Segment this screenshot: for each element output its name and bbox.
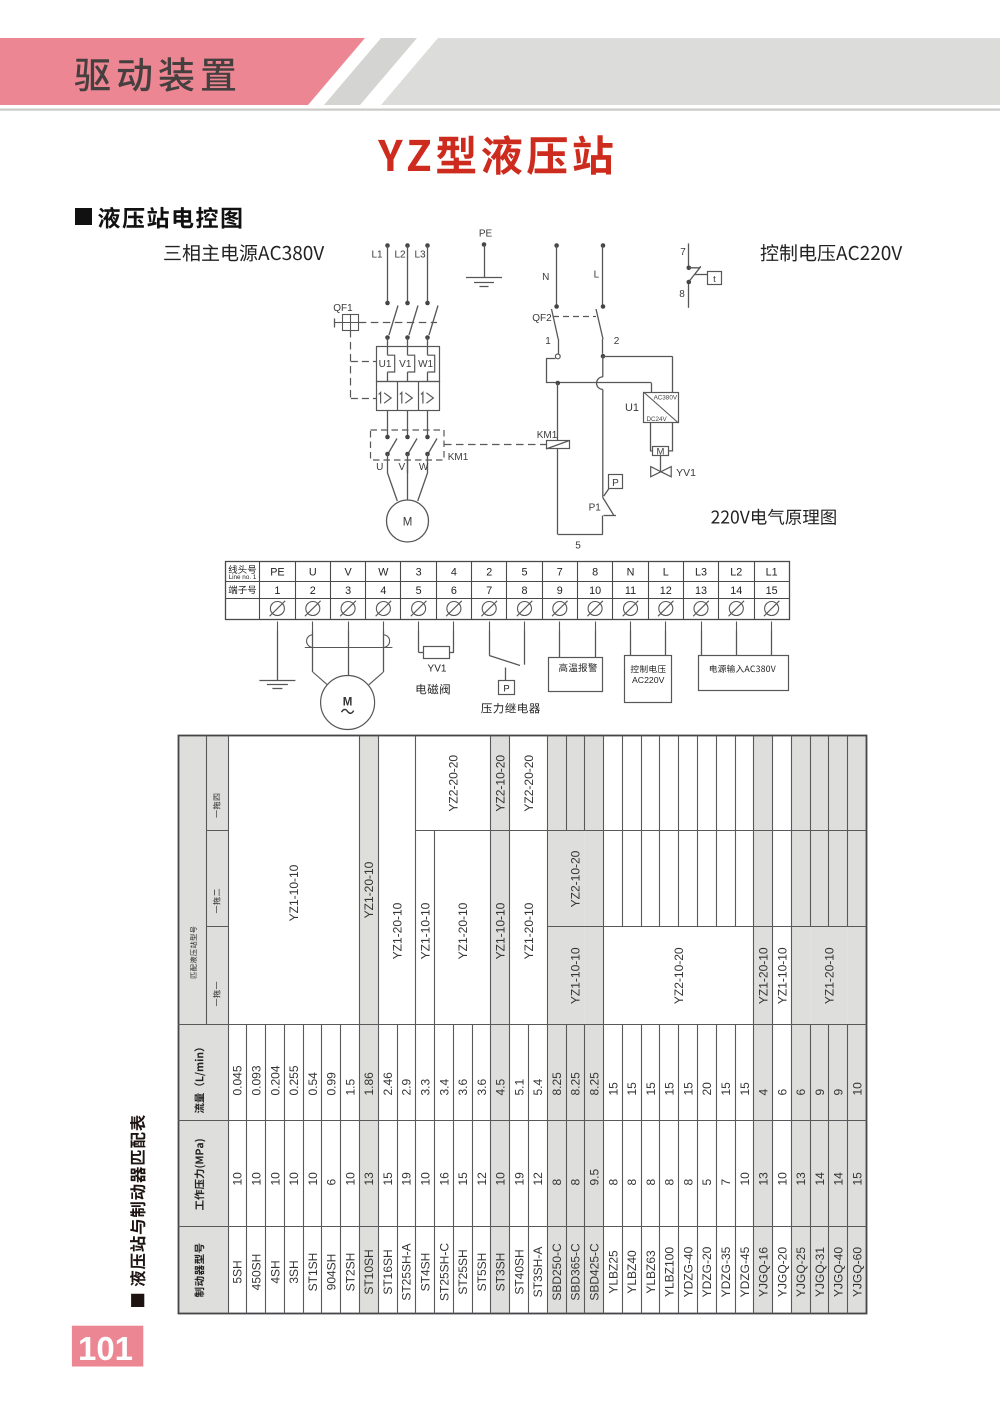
svg-text:19: 19	[400, 1172, 414, 1186]
svg-text:YLBZ40: YLBZ40	[625, 1250, 639, 1294]
svg-text:t: t	[713, 274, 716, 285]
svg-text:3: 3	[416, 566, 422, 578]
svg-text:YZ1-20-10: YZ1-20-10	[456, 902, 470, 959]
svg-text:4: 4	[451, 566, 457, 578]
svg-text:1: 1	[545, 336, 551, 347]
svg-text:10: 10	[850, 1082, 864, 1096]
svg-text:L1: L1	[766, 566, 778, 578]
svg-text:8: 8	[679, 289, 685, 300]
svg-text:10: 10	[306, 1172, 320, 1186]
svg-text:QF2: QF2	[532, 313, 552, 324]
svg-text:3.4: 3.4	[437, 1078, 451, 1095]
svg-text:13: 13	[757, 1172, 771, 1186]
svg-text:10: 10	[589, 585, 601, 597]
svg-text:YV1: YV1	[676, 467, 696, 479]
svg-text:16: 16	[437, 1172, 451, 1186]
svg-text:YZ2-10-20: YZ2-10-20	[494, 755, 508, 812]
svg-text:4.5: 4.5	[494, 1078, 508, 1095]
svg-text:10: 10	[231, 1172, 245, 1186]
svg-text:8: 8	[569, 1179, 583, 1186]
svg-text:8.25: 8.25	[550, 1072, 564, 1096]
svg-text:3.6: 3.6	[456, 1078, 470, 1095]
svg-text:U: U	[376, 462, 383, 473]
svg-text:YZ1-10-10: YZ1-10-10	[419, 902, 433, 959]
svg-text:15: 15	[850, 1172, 864, 1186]
svg-text:450SH: 450SH	[249, 1254, 263, 1291]
svg-text:YJGQ-20: YJGQ-20	[775, 1247, 789, 1297]
svg-text:10: 10	[775, 1172, 789, 1186]
svg-text:YLBZ63: YLBZ63	[644, 1250, 658, 1294]
svg-text:YZ1-10-10: YZ1-10-10	[494, 902, 508, 959]
svg-text:YZ2-10-20: YZ2-10-20	[569, 850, 583, 907]
svg-text:12: 12	[660, 585, 672, 597]
svg-text:5: 5	[700, 1179, 714, 1186]
svg-text:20: 20	[700, 1082, 714, 1096]
svg-text:14: 14	[832, 1172, 846, 1186]
svg-text:9.5: 9.5	[588, 1168, 602, 1185]
svg-text:8.25: 8.25	[588, 1072, 602, 1096]
svg-text:904SH: 904SH	[325, 1254, 339, 1291]
svg-text:V1: V1	[399, 359, 412, 370]
svg-text:AC380V: AC380V	[654, 394, 678, 401]
svg-text:15: 15	[644, 1082, 658, 1096]
svg-text:YDZG-40: YDZG-40	[681, 1246, 695, 1297]
svg-text:9: 9	[557, 585, 563, 597]
svg-text:0.045: 0.045	[231, 1065, 245, 1095]
svg-text:8: 8	[681, 1179, 695, 1186]
svg-text:YZ2-20-20: YZ2-20-20	[447, 755, 461, 812]
svg-text:15: 15	[663, 1082, 677, 1096]
svg-text:5: 5	[521, 566, 527, 578]
svg-text:V: V	[398, 462, 405, 473]
svg-text:8: 8	[663, 1179, 677, 1186]
svg-text:6: 6	[325, 1179, 339, 1186]
svg-text:8.25: 8.25	[569, 1072, 583, 1096]
svg-text:W: W	[419, 462, 429, 473]
svg-text:YDZG-45: YDZG-45	[738, 1246, 752, 1297]
svg-text:101: 101	[78, 1330, 133, 1367]
svg-text:ST25SH-A: ST25SH-A	[400, 1243, 414, 1300]
svg-text:0.093: 0.093	[249, 1065, 263, 1095]
svg-text:L1: L1	[371, 250, 383, 261]
svg-text:5SH: 5SH	[231, 1260, 245, 1283]
svg-text:8: 8	[592, 566, 598, 578]
svg-text:8: 8	[625, 1179, 639, 1186]
svg-text:YDZG-35: YDZG-35	[719, 1246, 733, 1297]
svg-text:6: 6	[451, 585, 457, 597]
svg-text:W1: W1	[418, 359, 433, 370]
svg-text:14: 14	[730, 585, 742, 597]
svg-text:3.6: 3.6	[475, 1078, 489, 1095]
svg-text:P1: P1	[589, 503, 602, 514]
svg-text:YJGQ-16: YJGQ-16	[757, 1247, 771, 1297]
svg-text:YDZG-20: YDZG-20	[700, 1246, 714, 1297]
svg-text:YLBZ25: YLBZ25	[606, 1250, 620, 1294]
svg-text:1: 1	[274, 585, 280, 597]
svg-text:KM1: KM1	[537, 430, 558, 441]
svg-text:U1: U1	[625, 402, 639, 414]
svg-text:ST25SH-C: ST25SH-C	[437, 1243, 451, 1301]
svg-text:2: 2	[310, 585, 316, 597]
svg-text:L2: L2	[394, 250, 406, 261]
svg-text:8: 8	[550, 1179, 564, 1186]
svg-text:4SH: 4SH	[268, 1260, 282, 1283]
svg-text:DC24V: DC24V	[646, 416, 667, 423]
svg-text:YV1: YV1	[428, 664, 447, 675]
svg-text:ST3SH-A: ST3SH-A	[531, 1247, 545, 1298]
svg-text:PE: PE	[270, 566, 284, 578]
svg-text:ST5SH: ST5SH	[475, 1253, 489, 1292]
svg-text:5: 5	[416, 585, 422, 597]
svg-text:13: 13	[695, 585, 707, 597]
svg-text:U1: U1	[379, 359, 392, 370]
svg-text:13: 13	[362, 1172, 376, 1186]
svg-text:10: 10	[494, 1172, 508, 1186]
svg-text:ST40SH: ST40SH	[512, 1249, 526, 1294]
svg-text:15: 15	[681, 1082, 695, 1096]
svg-text:YZ1-20-10: YZ1-20-10	[757, 947, 771, 1004]
svg-text:KM1: KM1	[448, 452, 469, 463]
svg-text:12: 12	[475, 1172, 489, 1186]
svg-text:ST2SH: ST2SH	[343, 1253, 357, 1292]
svg-text:4: 4	[757, 1089, 771, 1096]
svg-text:5: 5	[575, 541, 581, 552]
svg-text:ST25SH: ST25SH	[456, 1249, 470, 1294]
svg-text:YZ1-10-10: YZ1-10-10	[287, 864, 301, 921]
svg-text:3SH: 3SH	[287, 1260, 301, 1283]
svg-text:SBD425-C: SBD425-C	[588, 1243, 602, 1301]
svg-text:8: 8	[644, 1179, 658, 1186]
svg-text:1.86: 1.86	[362, 1072, 376, 1096]
svg-text:PE: PE	[479, 229, 493, 240]
svg-text:0.255: 0.255	[287, 1065, 301, 1095]
svg-text:5.4: 5.4	[531, 1078, 545, 1095]
svg-text:5.1: 5.1	[512, 1078, 526, 1095]
svg-text:ST1SH: ST1SH	[306, 1253, 320, 1292]
svg-text:N: N	[542, 272, 549, 283]
svg-text:9: 9	[832, 1089, 846, 1096]
svg-text:AC220V: AC220V	[632, 675, 665, 685]
svg-text:ST10SH: ST10SH	[362, 1249, 376, 1294]
svg-text:13: 13	[794, 1172, 808, 1186]
svg-text:YJGQ-40: YJGQ-40	[832, 1247, 846, 1297]
svg-text:7: 7	[486, 585, 492, 597]
svg-text:SBD250-C: SBD250-C	[550, 1243, 564, 1301]
svg-text:2: 2	[614, 336, 620, 347]
svg-text:YZ2-20-20: YZ2-20-20	[522, 755, 536, 812]
svg-text:10: 10	[738, 1172, 752, 1186]
svg-text:15: 15	[738, 1082, 752, 1096]
svg-text:YZ2-10-20: YZ2-10-20	[672, 947, 686, 1004]
svg-text:N: N	[627, 566, 635, 578]
svg-text:9: 9	[813, 1089, 827, 1096]
svg-text:0.54: 0.54	[306, 1072, 320, 1096]
svg-text:L: L	[663, 566, 669, 578]
svg-text:10: 10	[287, 1172, 301, 1186]
svg-text:3: 3	[345, 585, 351, 597]
svg-text:14: 14	[813, 1172, 827, 1186]
svg-text:15: 15	[456, 1172, 470, 1186]
svg-text:6: 6	[794, 1089, 808, 1096]
svg-text:12: 12	[531, 1172, 545, 1186]
svg-text:0.204: 0.204	[268, 1065, 282, 1095]
svg-text:7: 7	[557, 566, 563, 578]
svg-text:15: 15	[719, 1082, 733, 1096]
svg-text:YZ1-20-10: YZ1-20-10	[362, 861, 376, 918]
svg-text:1.5: 1.5	[343, 1078, 357, 1095]
svg-text:3.3: 3.3	[419, 1078, 433, 1095]
svg-text:10: 10	[343, 1172, 357, 1186]
svg-text:2: 2	[486, 566, 492, 578]
svg-text:M: M	[403, 517, 413, 529]
svg-text:ST4SH: ST4SH	[419, 1253, 433, 1292]
svg-text:P: P	[612, 478, 619, 489]
svg-text:ST3SH: ST3SH	[494, 1253, 508, 1292]
svg-text:15: 15	[766, 585, 778, 597]
svg-text:0.99: 0.99	[325, 1072, 339, 1096]
svg-text:L: L	[594, 270, 600, 281]
svg-text:YJGQ-31: YJGQ-31	[813, 1247, 827, 1297]
svg-text:ST16SH: ST16SH	[381, 1249, 395, 1294]
svg-text:YJGQ-60: YJGQ-60	[850, 1247, 864, 1297]
svg-text:Line no. 1: Line no. 1	[229, 574, 257, 581]
svg-text:11: 11	[625, 585, 636, 597]
svg-text:QF1: QF1	[333, 303, 353, 314]
svg-text:L3: L3	[695, 566, 707, 578]
svg-text:2.46: 2.46	[381, 1072, 395, 1096]
svg-text:YZ1-10-10: YZ1-10-10	[775, 947, 789, 1004]
svg-text:8: 8	[606, 1179, 620, 1186]
svg-text:W: W	[378, 566, 389, 578]
svg-text:V: V	[344, 566, 352, 578]
svg-text:YZ1-10-10: YZ1-10-10	[569, 947, 583, 1004]
svg-text:YZ1-20-10: YZ1-20-10	[522, 902, 536, 959]
svg-text:P: P	[503, 684, 509, 695]
svg-text:15: 15	[381, 1172, 395, 1186]
svg-text:U: U	[309, 566, 317, 578]
svg-text:7: 7	[719, 1179, 733, 1186]
svg-text:YZ1-20-10: YZ1-20-10	[390, 902, 404, 959]
svg-text:15: 15	[606, 1082, 620, 1096]
svg-text:YJGQ-25: YJGQ-25	[794, 1247, 808, 1297]
svg-text:10: 10	[419, 1172, 433, 1186]
svg-text:L3: L3	[414, 250, 426, 261]
svg-text:M: M	[343, 697, 353, 709]
svg-text:10: 10	[249, 1172, 263, 1186]
svg-text:7: 7	[680, 247, 686, 258]
svg-text:YLBZ100: YLBZ100	[663, 1247, 677, 1297]
svg-text:SBD365-C: SBD365-C	[569, 1243, 583, 1301]
svg-text:YZ1-20-10: YZ1-20-10	[822, 947, 836, 1004]
svg-text:15: 15	[625, 1082, 639, 1096]
svg-text:2.9: 2.9	[400, 1078, 414, 1095]
svg-text:6: 6	[775, 1089, 789, 1096]
svg-text:8: 8	[521, 585, 527, 597]
svg-text:19: 19	[512, 1172, 526, 1186]
svg-text:4: 4	[380, 585, 386, 597]
svg-text:10: 10	[268, 1172, 282, 1186]
svg-text:L2: L2	[730, 566, 742, 578]
